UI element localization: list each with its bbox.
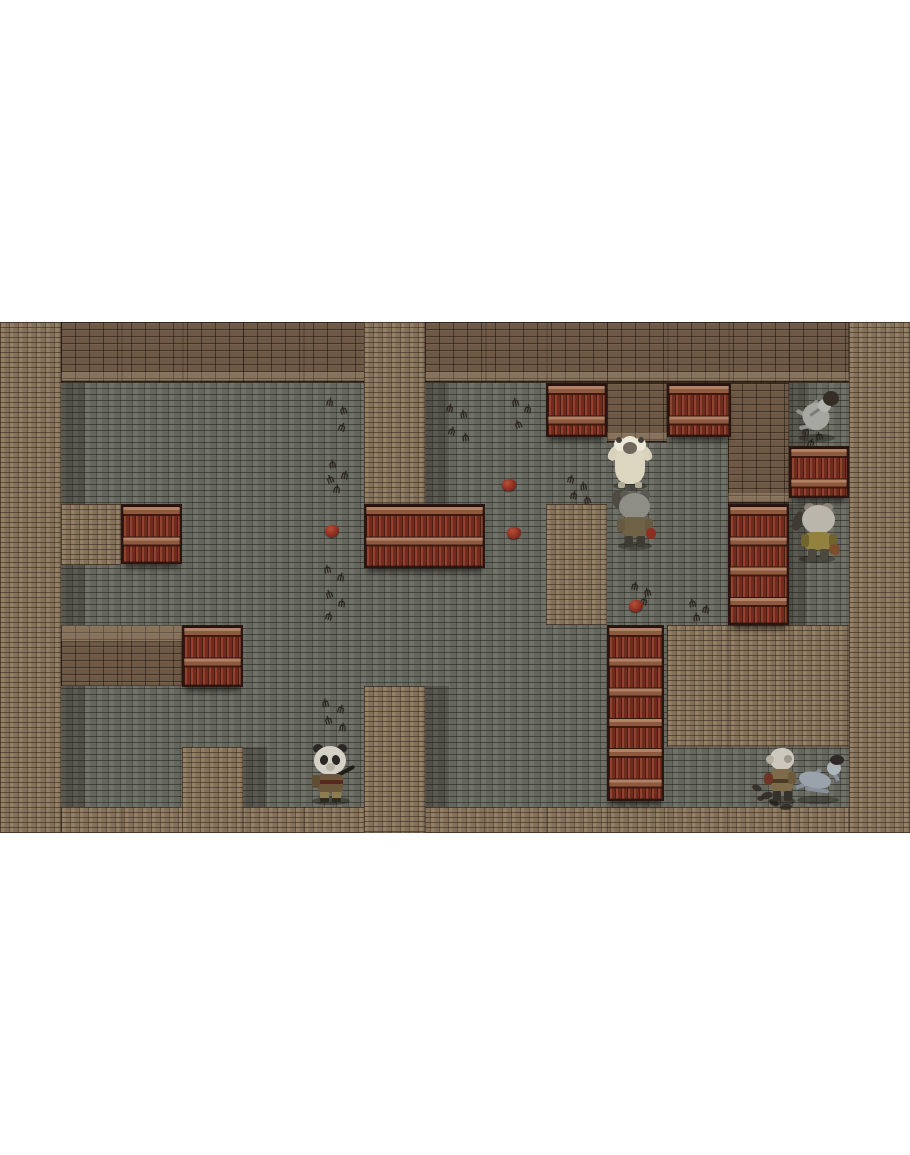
footprint-decal-icon: ψ — [340, 470, 350, 483]
footprint-decal-icon: ψ — [325, 397, 334, 409]
footprint-decal-icon: ψ — [523, 404, 532, 416]
panda-gunner-arm-left — [312, 775, 320, 788]
wall-shadow — [61, 383, 85, 808]
panda-gunner[interactable] — [306, 744, 356, 803]
cat-villager-east-body — [805, 532, 832, 550]
pillar-bottom-left — [182, 747, 243, 833]
cat-villager-east-leg-left — [808, 549, 816, 560]
footprint-decal-icon: ψ — [701, 604, 710, 616]
letterbox-bottom — [0, 833, 910, 1155]
footprint-decal-icon: ψ — [339, 405, 349, 418]
footprint-decal-icon: ψ — [337, 599, 345, 611]
goat-warrior-leg-left — [773, 791, 781, 801]
footprint-decal-icon: ψ — [324, 589, 334, 602]
footprint-decal-icon: ψ — [630, 581, 639, 593]
cat-villager-front-head — [619, 493, 650, 520]
skeleton-south-cap — [830, 755, 844, 765]
wall-shadow — [425, 383, 449, 504]
pillar-top-center — [364, 322, 425, 504]
cat-villager-east[interactable] — [793, 503, 841, 561]
footprint-decal-icon: ψ — [566, 474, 576, 487]
panda-gunner-boot-right — [332, 798, 341, 803]
footprint-decal-icon: ψ — [459, 409, 468, 421]
footprint-decal-icon: ψ — [332, 485, 341, 497]
footprint-decal-icon: ψ — [336, 422, 347, 435]
debris-decal — [757, 796, 764, 801]
footprint-decal-icon: ψ — [692, 613, 700, 625]
red-blob-decal — [507, 527, 521, 539]
skeleton-north[interactable] — [793, 390, 841, 440]
footprint-decal-icon: ψ — [569, 490, 578, 502]
letterbox-top — [0, 0, 910, 322]
cat-villager-front-pouch — [646, 528, 656, 539]
border-bottom — [61, 807, 850, 833]
block-left-small — [61, 504, 122, 565]
panda-gunner-muzzle — [326, 763, 335, 771]
cat-villager-east-arm-left — [801, 534, 809, 547]
game-viewport[interactable]: ψψψψψψψψψψψψψψψψψψψψψψψψψψψψψψψψψψψψ — [0, 322, 910, 833]
footprint-decal-icon: ψ — [462, 433, 470, 445]
cat-villager-east-leg-right — [820, 549, 828, 560]
cat-villager-front-leg-left — [625, 536, 633, 547]
shelf-top-b — [667, 383, 731, 437]
red-blob-decal — [502, 479, 516, 491]
sheep-monster-ear-right — [638, 437, 644, 443]
skeleton-south-body — [798, 769, 832, 790]
footprint-decal-icon: ψ — [324, 715, 334, 728]
pillar-bottom-center — [364, 686, 425, 833]
footprint-decal-icon: ψ — [323, 564, 332, 576]
skeleton-north-hair — [823, 391, 839, 406]
shelf-right-tall — [728, 504, 789, 625]
footprint-decal-icon: ψ — [511, 397, 520, 409]
wall-top-band — [61, 322, 850, 383]
cat-villager-front-arm-left — [617, 519, 625, 532]
footprint-decal-icon: ψ — [324, 611, 334, 624]
sheep-monster-foot-left — [618, 482, 625, 488]
panda-gunner-boot-left — [320, 798, 329, 803]
footprint-decal-icon: ψ — [321, 699, 330, 711]
block-right-large — [667, 625, 849, 746]
footprint-decal-icon: ψ — [329, 460, 337, 472]
cat-villager-east-head — [802, 505, 835, 534]
sheep-monster[interactable] — [608, 436, 652, 488]
wall-left-band — [61, 625, 182, 686]
wall-mid-top — [607, 383, 668, 444]
goat-warrior-item — [764, 773, 773, 785]
sheep-monster-face — [623, 442, 637, 454]
footprint-decal-icon: ψ — [336, 572, 345, 584]
footprint-decal-icon: ψ — [583, 495, 593, 508]
shelf-top-a — [546, 383, 607, 437]
footprint-decal-icon: ψ — [339, 723, 347, 735]
pillar-center — [546, 504, 607, 625]
skeleton-south[interactable] — [791, 754, 845, 802]
debris-decal — [751, 783, 762, 792]
shelf-left-a — [121, 504, 182, 564]
shelf-center-tall — [607, 625, 664, 801]
red-blob-decal — [629, 600, 643, 612]
red-blob-decal — [325, 525, 339, 537]
goat-warrior-mane — [766, 755, 774, 764]
shelf-left-b — [182, 625, 243, 687]
shelf-right-corridor — [789, 446, 850, 498]
footprint-decal-icon: ψ — [579, 482, 588, 494]
border-right — [849, 322, 910, 833]
cat-villager-front[interactable] — [612, 490, 658, 548]
sheep-monster-foot-right — [635, 482, 642, 488]
sheep-monster-ear-left — [616, 437, 622, 443]
panda-gunner-strap — [318, 780, 343, 784]
footprint-decal-icon: ψ — [336, 704, 346, 716]
cat-villager-east-pouch — [829, 544, 840, 555]
footprint-decal-icon: ψ — [446, 426, 456, 439]
footprint-decal-icon: ψ — [513, 419, 524, 432]
shelf-mid-double — [364, 504, 485, 568]
cat-villager-front-leg-right — [637, 536, 645, 547]
footprint-decal-icon: ψ — [688, 598, 697, 610]
border-left — [0, 322, 61, 833]
wall-right-top — [728, 383, 789, 504]
footprint-decal-icon: ψ — [445, 403, 454, 415]
